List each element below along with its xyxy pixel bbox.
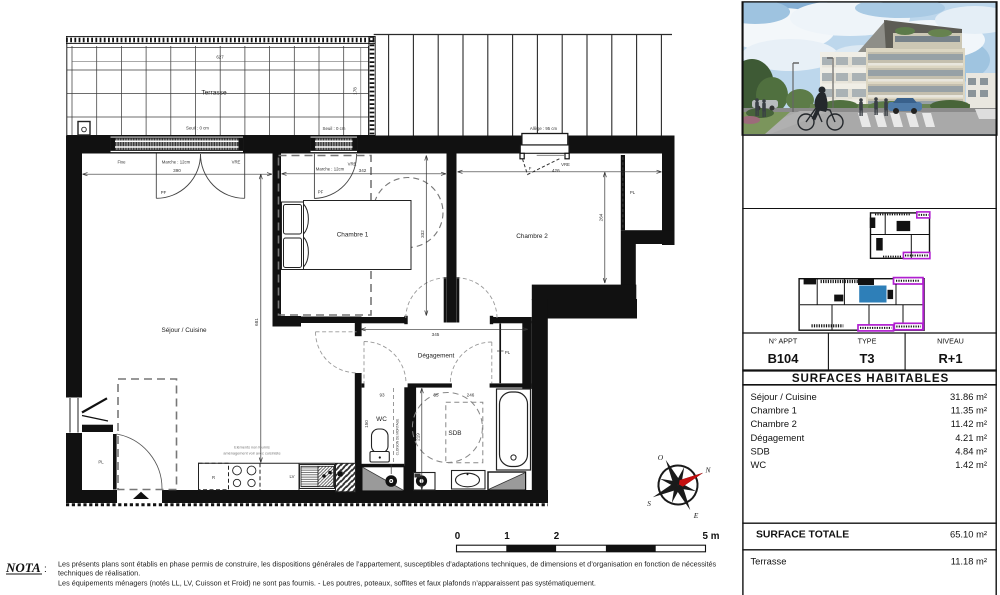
svg-text:627: 627 (216, 55, 224, 60)
svg-text:Eléments non fournis: Eléments non fournis (234, 446, 270, 450)
svg-text:NOTA: NOTA (5, 560, 41, 575)
svg-text:Séjour / Cuisine: Séjour / Cuisine (751, 391, 817, 402)
svg-text:150: 150 (364, 420, 369, 428)
svg-text:S: S (647, 499, 651, 508)
svg-text:VRE: VRE (348, 162, 357, 167)
svg-text:CLOISON DE MONTAGE: CLOISON DE MONTAGE (396, 419, 400, 455)
svg-text:Séjour / Cuisine: Séjour / Cuisine (161, 327, 207, 334)
svg-text:Terrasse: Terrasse (201, 90, 227, 97)
svg-text:TYPE: TYPE (858, 337, 877, 346)
svg-text:VRE: VRE (561, 162, 570, 167)
svg-text:E: E (693, 511, 699, 520)
svg-text::: : (44, 564, 47, 575)
svg-text:PF: PF (161, 190, 167, 195)
svg-text:N° APPT: N° APPT (769, 337, 798, 346)
svg-text:11.42 m²: 11.42 m² (951, 418, 987, 429)
svg-text:WC: WC (751, 459, 767, 470)
svg-text:31.86 m²: 31.86 m² (950, 391, 987, 402)
svg-text:93: 93 (379, 393, 385, 398)
svg-text:Marche : 12cm: Marche : 12cm (316, 167, 345, 172)
svg-text:345: 345 (432, 332, 440, 337)
svg-text:Dégagement: Dégagement (751, 432, 805, 443)
svg-text:VRE: VRE (232, 159, 241, 164)
svg-text:Les équipements ménagers (noté: Les équipements ménagers (notés LL, LV, … (58, 579, 596, 588)
svg-text:aménagement voir avec cuisinis: aménagement voir avec cuisiniste (223, 452, 280, 456)
svg-text:Allège : 95 cm: Allège : 95 cm (530, 126, 558, 131)
svg-text:O: O (658, 453, 664, 462)
svg-text:2: 2 (554, 531, 560, 542)
svg-text:Chambre 2: Chambre 2 (751, 418, 797, 429)
svg-text:N: N (704, 466, 711, 475)
svg-text:T3: T3 (859, 351, 874, 366)
svg-text:Chambre 1: Chambre 1 (751, 405, 797, 416)
svg-text:4.84 m²: 4.84 m² (955, 445, 987, 456)
svg-text:Terrasse: Terrasse (751, 556, 787, 567)
svg-text:R: R (212, 475, 215, 480)
svg-text:Dégagement: Dégagement (418, 353, 455, 360)
svg-text:techniques de réalisation.: techniques de réalisation. (58, 569, 140, 578)
svg-text:0: 0 (455, 531, 461, 542)
svg-text:11.35 m²: 11.35 m² (951, 405, 987, 416)
svg-text:SURFACE TOTALE: SURFACE TOTALE (756, 530, 849, 541)
svg-text:246: 246 (467, 393, 475, 398)
svg-text:1: 1 (504, 531, 510, 542)
svg-text:PL: PL (505, 350, 511, 355)
svg-text:264: 264 (598, 213, 603, 221)
svg-text:11.18 m²: 11.18 m² (951, 556, 987, 567)
svg-text:SURFACES HABITABLES: SURFACES HABITABLES (792, 372, 949, 385)
svg-text:65.10 m²: 65.10 m² (950, 529, 987, 540)
svg-text:PL: PL (630, 190, 636, 195)
svg-text:1.42 m²: 1.42 m² (955, 459, 987, 470)
svg-text:PL: PL (98, 460, 104, 465)
svg-text:681: 681 (254, 318, 259, 326)
svg-text:55: 55 (433, 393, 439, 398)
svg-text:Chambre 1: Chambre 1 (337, 232, 369, 239)
svg-text:426: 426 (552, 168, 560, 173)
svg-text:Marche : 12cm: Marche : 12cm (162, 159, 191, 164)
svg-text:Seuil : 0 cm: Seuil : 0 cm (186, 126, 209, 131)
svg-text:178: 178 (353, 87, 358, 95)
svg-text:LV: LV (290, 474, 295, 479)
svg-text:SDB: SDB (751, 445, 770, 456)
svg-text:B104: B104 (768, 351, 800, 366)
svg-text:NIVEAU: NIVEAU (937, 337, 964, 346)
svg-text:F: F (529, 166, 532, 171)
svg-text:219: 219 (415, 433, 420, 441)
svg-text:WC: WC (376, 416, 387, 423)
svg-text:5 m: 5 m (703, 531, 720, 542)
svg-text:Les présents plans sont établi: Les présents plans sont établis en phase… (58, 560, 717, 569)
svg-text:4.21 m²: 4.21 m² (955, 432, 987, 443)
svg-text:342: 342 (359, 168, 367, 173)
svg-text:SDB: SDB (448, 430, 461, 437)
svg-text:Seuil : 0 cm: Seuil : 0 cm (323, 126, 346, 131)
svg-text:Chambre 2: Chambre 2 (516, 233, 548, 240)
svg-text:332: 332 (420, 230, 425, 238)
svg-text:Fixe: Fixe (117, 159, 126, 164)
svg-text:PF: PF (318, 190, 324, 195)
svg-text:390: 390 (173, 168, 181, 173)
svg-text:R+1: R+1 (938, 351, 962, 366)
